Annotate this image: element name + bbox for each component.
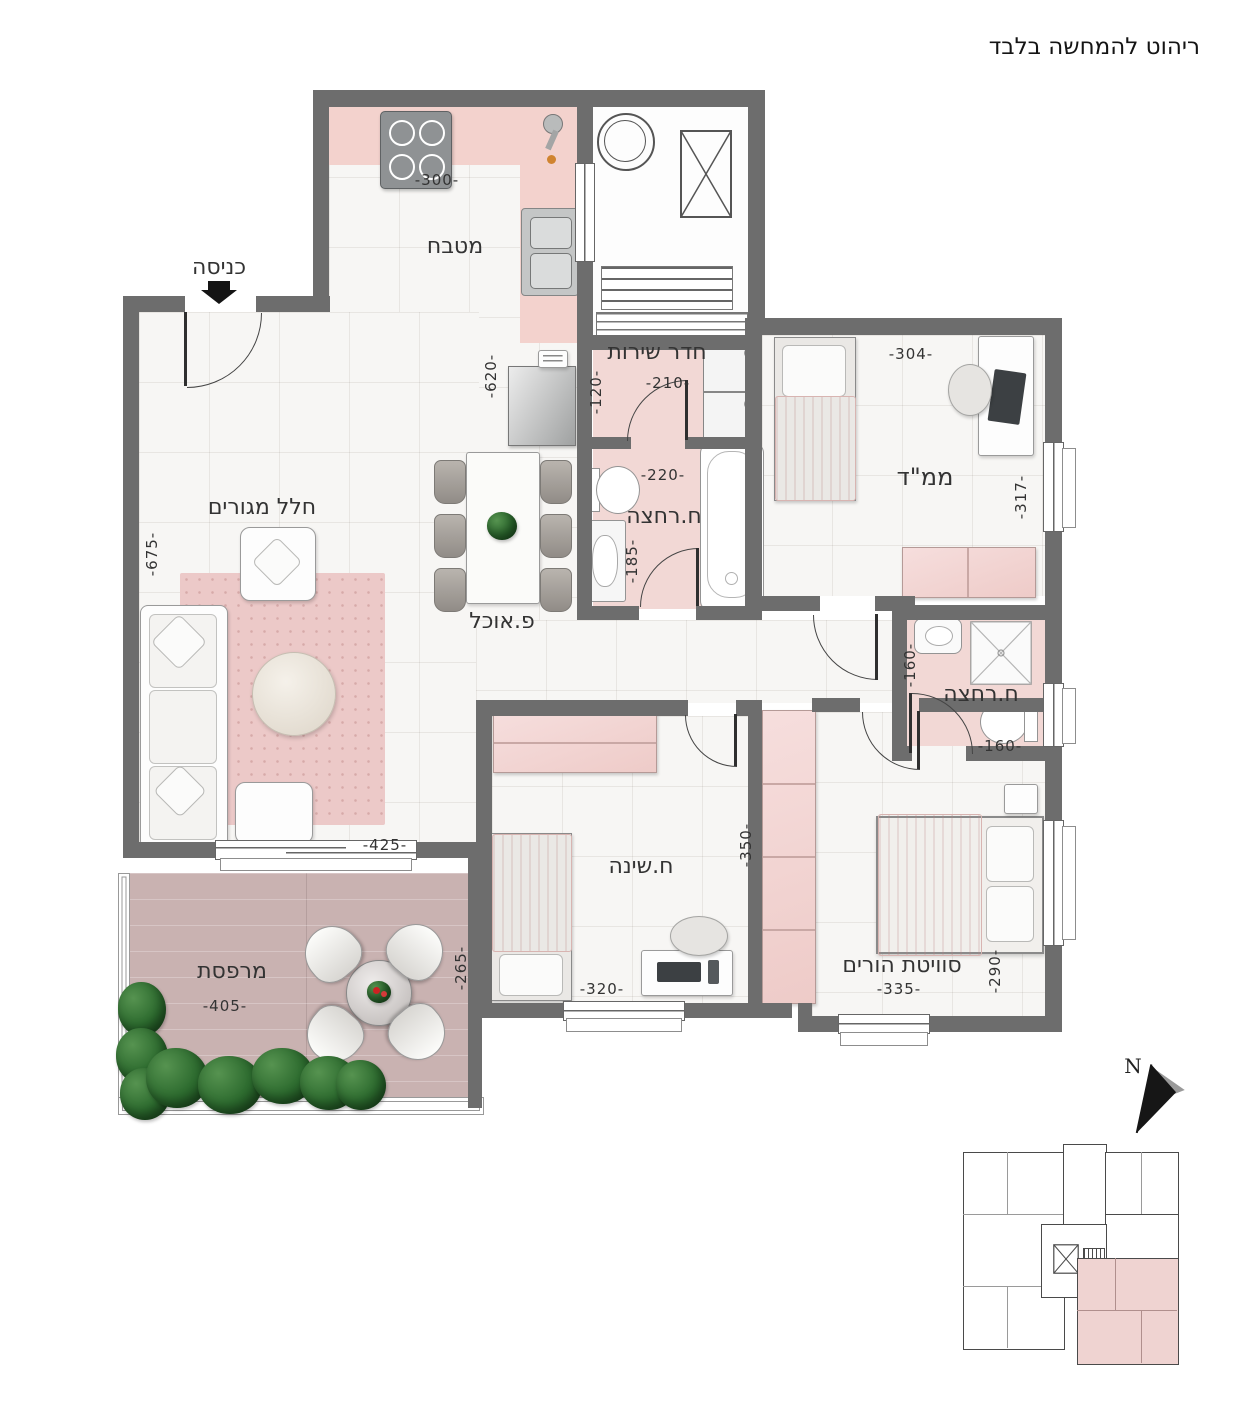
shower [970,621,1032,685]
door-leaf [875,614,878,680]
room-label-bath1: ח.רחצה [594,504,734,529]
dim-living-height: -675- [143,514,161,594]
door-leaf [696,548,699,606]
burner-ring [389,120,415,146]
keyplan-elevator [1053,1244,1079,1274]
closet-divider [763,856,815,858]
keyplan-line [963,1214,1063,1215]
flower [381,991,387,997]
room-label-balcony: מרפסת [162,959,302,984]
plant [336,1060,386,1110]
decor-dot [547,155,556,164]
wall-segment [696,606,762,620]
room-label-kitchen: מטבח [395,234,515,259]
wall-segment [892,605,1062,620]
plant [198,1056,262,1114]
dim-kitchen-width: -300- [397,171,477,189]
dim-mamad-height: -317- [1012,457,1030,537]
bed-blanket [775,396,856,501]
dim-bath2-width: -160- [960,737,1040,755]
wall-segment [762,596,820,611]
dining-chair [540,460,572,504]
bathtub-drain [725,572,738,585]
door-leaf [184,312,187,386]
wall-segment [577,437,631,449]
pc-tower [708,960,719,984]
dim-living-width: -425- [345,836,425,854]
keyplan-line [1077,1310,1177,1311]
double-bed [876,816,1044,954]
door-leaf [734,714,737,766]
flower [373,987,380,994]
desk-chair [670,916,728,956]
wall-segment [745,318,762,620]
bed-blanket [878,814,982,956]
dim-mamad-width: -304- [871,345,951,363]
armchair [240,527,316,601]
dim-balcony-width: -405- [185,997,265,1015]
wall-segment [313,90,765,107]
dim-bath2-height: -160- [901,625,919,705]
sofa-cushion [149,690,217,764]
keyplan-line [1115,1258,1116,1310]
keyplan-line [1141,1310,1142,1363]
balcony-step [220,858,412,871]
refrigerator [508,366,576,446]
room-label-living: חלל מגורים [172,495,352,520]
window-sill [1062,448,1076,528]
dining-chair [434,568,466,612]
keyplan-line [1007,1286,1008,1348]
wall-segment [123,842,217,858]
window-sill [1062,688,1076,744]
bed-pillow [782,345,846,397]
room-label-bedroom: ח.שינה [571,854,711,879]
room-label-bath2: ח.רחצה [911,682,1051,707]
wardrobe [493,713,657,773]
entrance-arrow-icon [201,290,237,304]
floor-plan: ריהוט להמחשה בלבד [0,0,1240,1417]
entrance-label: כניסה [159,255,279,280]
bed-blanket [492,834,572,952]
window-sill [840,1032,928,1046]
throw-pillow [252,537,303,588]
window [1043,820,1064,946]
wall-segment [798,1003,812,1032]
wall-segment [748,90,765,335]
dining-chair [434,460,466,504]
room-label-dining: פ.אוכל [442,609,562,634]
keyplan-block [1063,1144,1107,1226]
laptop [657,962,701,982]
wall-segment [577,606,639,620]
laptop [988,369,1027,425]
entrance-arrow-stem [208,281,230,290]
dim-bedroom-height: -350- [737,805,755,885]
sink-basin [592,535,618,587]
keyplan-line [1141,1152,1142,1214]
dim-service-height: -120- [587,352,605,432]
stairs [601,266,733,310]
wall-segment [685,437,762,449]
room-label-suite: סוויטת הורים [802,953,1002,978]
sink-basin [530,217,572,249]
wall-segment [762,318,1062,335]
keyplan-line [1007,1152,1008,1214]
dining-chair [540,514,572,558]
wall-segment [468,858,482,1108]
window-sill [1062,826,1076,940]
wall-segment [256,296,330,312]
sink-basin [530,253,572,289]
armchair [235,782,313,844]
dim-bath1-height: -185- [623,521,641,601]
dim-suite-width: -335- [859,980,939,998]
wall-segment [812,698,860,712]
dim-bath1-width: -220- [623,466,703,484]
dining-chair [540,568,572,612]
bathroom2-sink [914,618,962,654]
bed-pillow [499,954,563,996]
window-sill [566,1018,682,1032]
shaft-circle-inner [604,120,646,162]
kitchen-sink [521,208,579,296]
dim-kitchen-depth: -620- [482,336,500,416]
shaft-circle [597,113,655,171]
water-heater [538,350,568,368]
bed-pillow [986,826,1034,882]
single-bed [774,337,856,501]
disclaimer-text: ריהוט להמחשה בלבד [960,34,1200,60]
dim-balcony-height: -265- [452,928,470,1008]
room-label-mamad: ממ"ד [865,463,985,491]
sofa [140,605,228,849]
wall-segment [123,296,139,858]
window [838,1014,930,1034]
dim-suite-height: -290- [986,931,1004,1011]
dim-bedroom-width: -320- [562,980,642,998]
cabinet-divider [967,548,969,597]
coffee-table [252,652,336,736]
sink-basin [925,626,953,646]
desk-chair [948,364,992,416]
wall-segment [476,700,688,716]
wall-segment [313,90,329,312]
table-plant [487,512,517,540]
desk [641,950,733,996]
closet-divider [763,783,815,785]
dining-chair [434,514,466,558]
key-plan [955,1118,1185,1373]
elevator [680,130,732,218]
closet-divider [763,929,815,931]
keyplan-highlighted-unit [1077,1258,1179,1365]
window [575,163,595,262]
nightstand [1004,784,1038,814]
window [1043,442,1064,532]
dim-service-width: -210- [628,374,708,392]
burner-ring [419,120,445,146]
single-bed [491,833,572,1001]
mamad-cabinet [902,547,1036,598]
keyplan-block [1105,1152,1179,1216]
wardrobe-divider [494,742,656,744]
